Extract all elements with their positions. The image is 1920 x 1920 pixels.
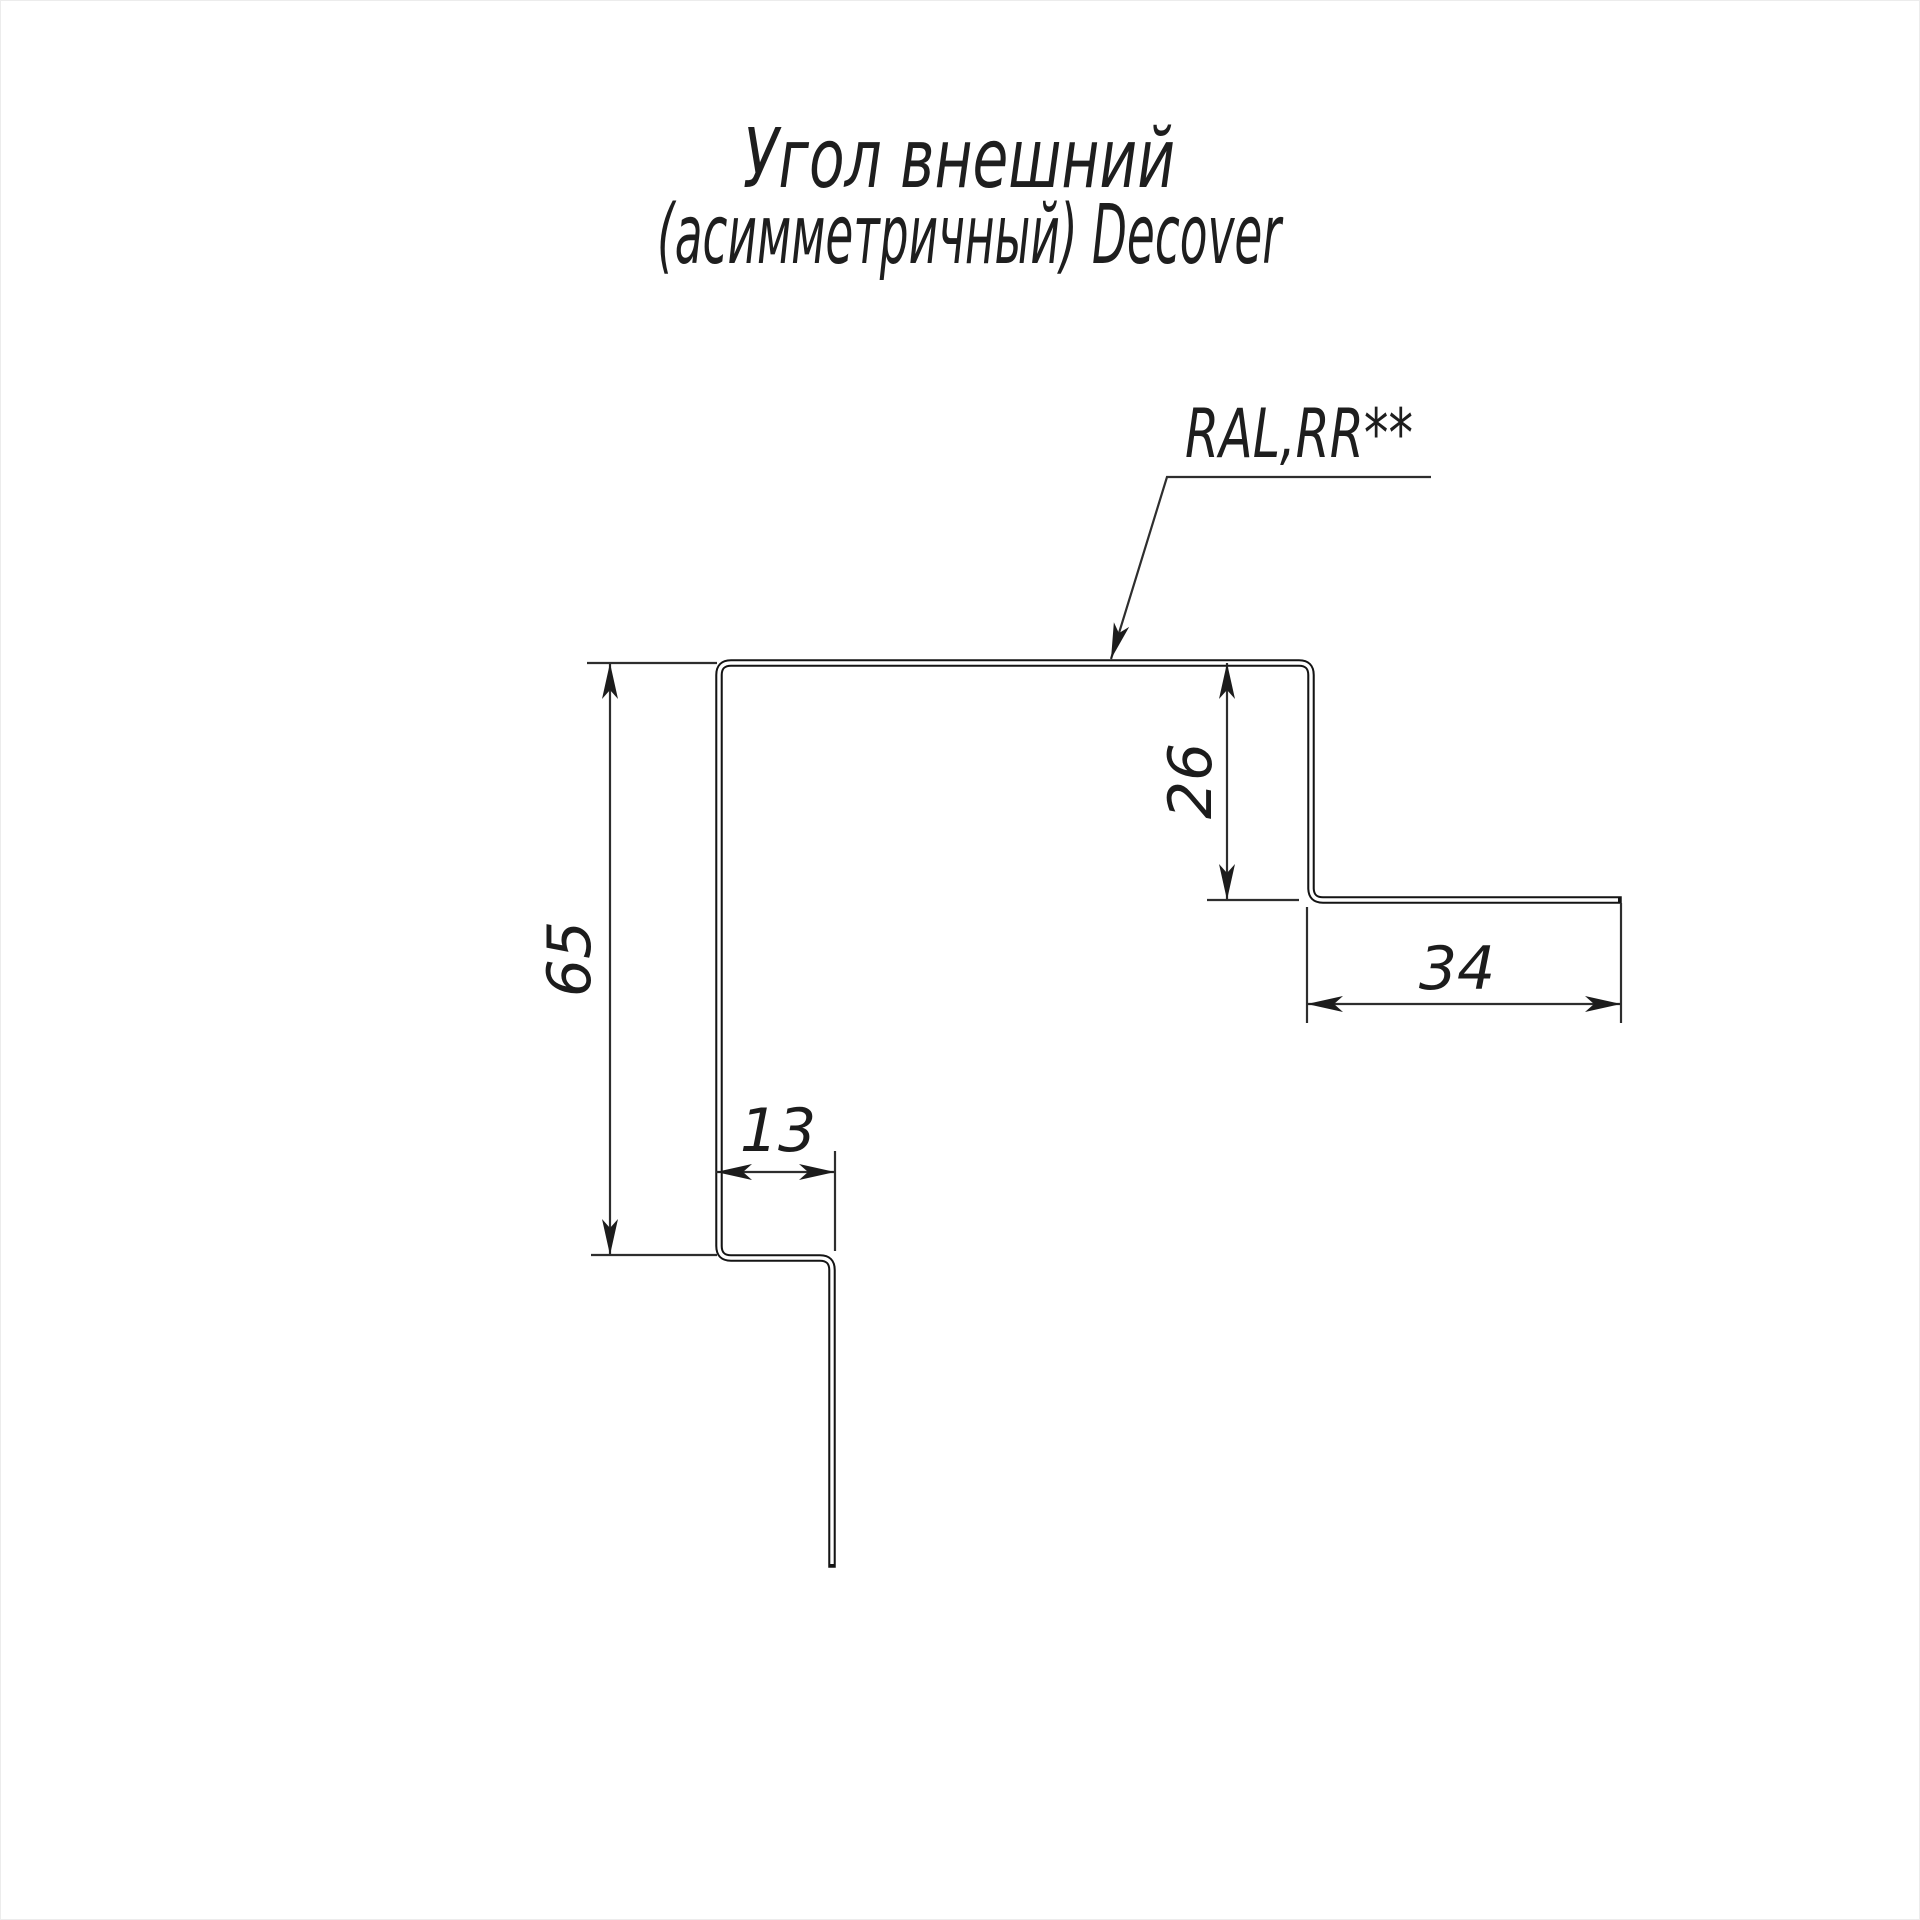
drawing-title: Угол внешний (асимметричный) Decover xyxy=(657,112,1283,283)
coating-leader: RAL,RR** xyxy=(1103,395,1431,661)
dim-65-value: 65 xyxy=(535,921,605,997)
dimension-26: 26 xyxy=(1156,663,1299,900)
dimension-13: 13 xyxy=(716,1096,835,1251)
technical-drawing-canvas: Угол внешний (асимметричный) Decover RAL… xyxy=(1,1,1920,1920)
coating-leader-line xyxy=(1111,477,1431,659)
dim-26-value: 26 xyxy=(1156,743,1226,819)
dim-13-value: 13 xyxy=(740,1096,816,1166)
dim-34-value: 34 xyxy=(1419,934,1495,1004)
dimension-34: 34 xyxy=(1307,903,1621,1023)
coating-label: RAL,RR** xyxy=(1185,395,1413,474)
dimension-65: 65 xyxy=(535,663,717,1255)
title-line-2: (асимметричный) Decover xyxy=(657,188,1283,283)
drawing-page: Угол внешний (асимметричный) Decover RAL… xyxy=(0,0,1920,1920)
coating-leader-arrow-icon xyxy=(1103,622,1129,661)
